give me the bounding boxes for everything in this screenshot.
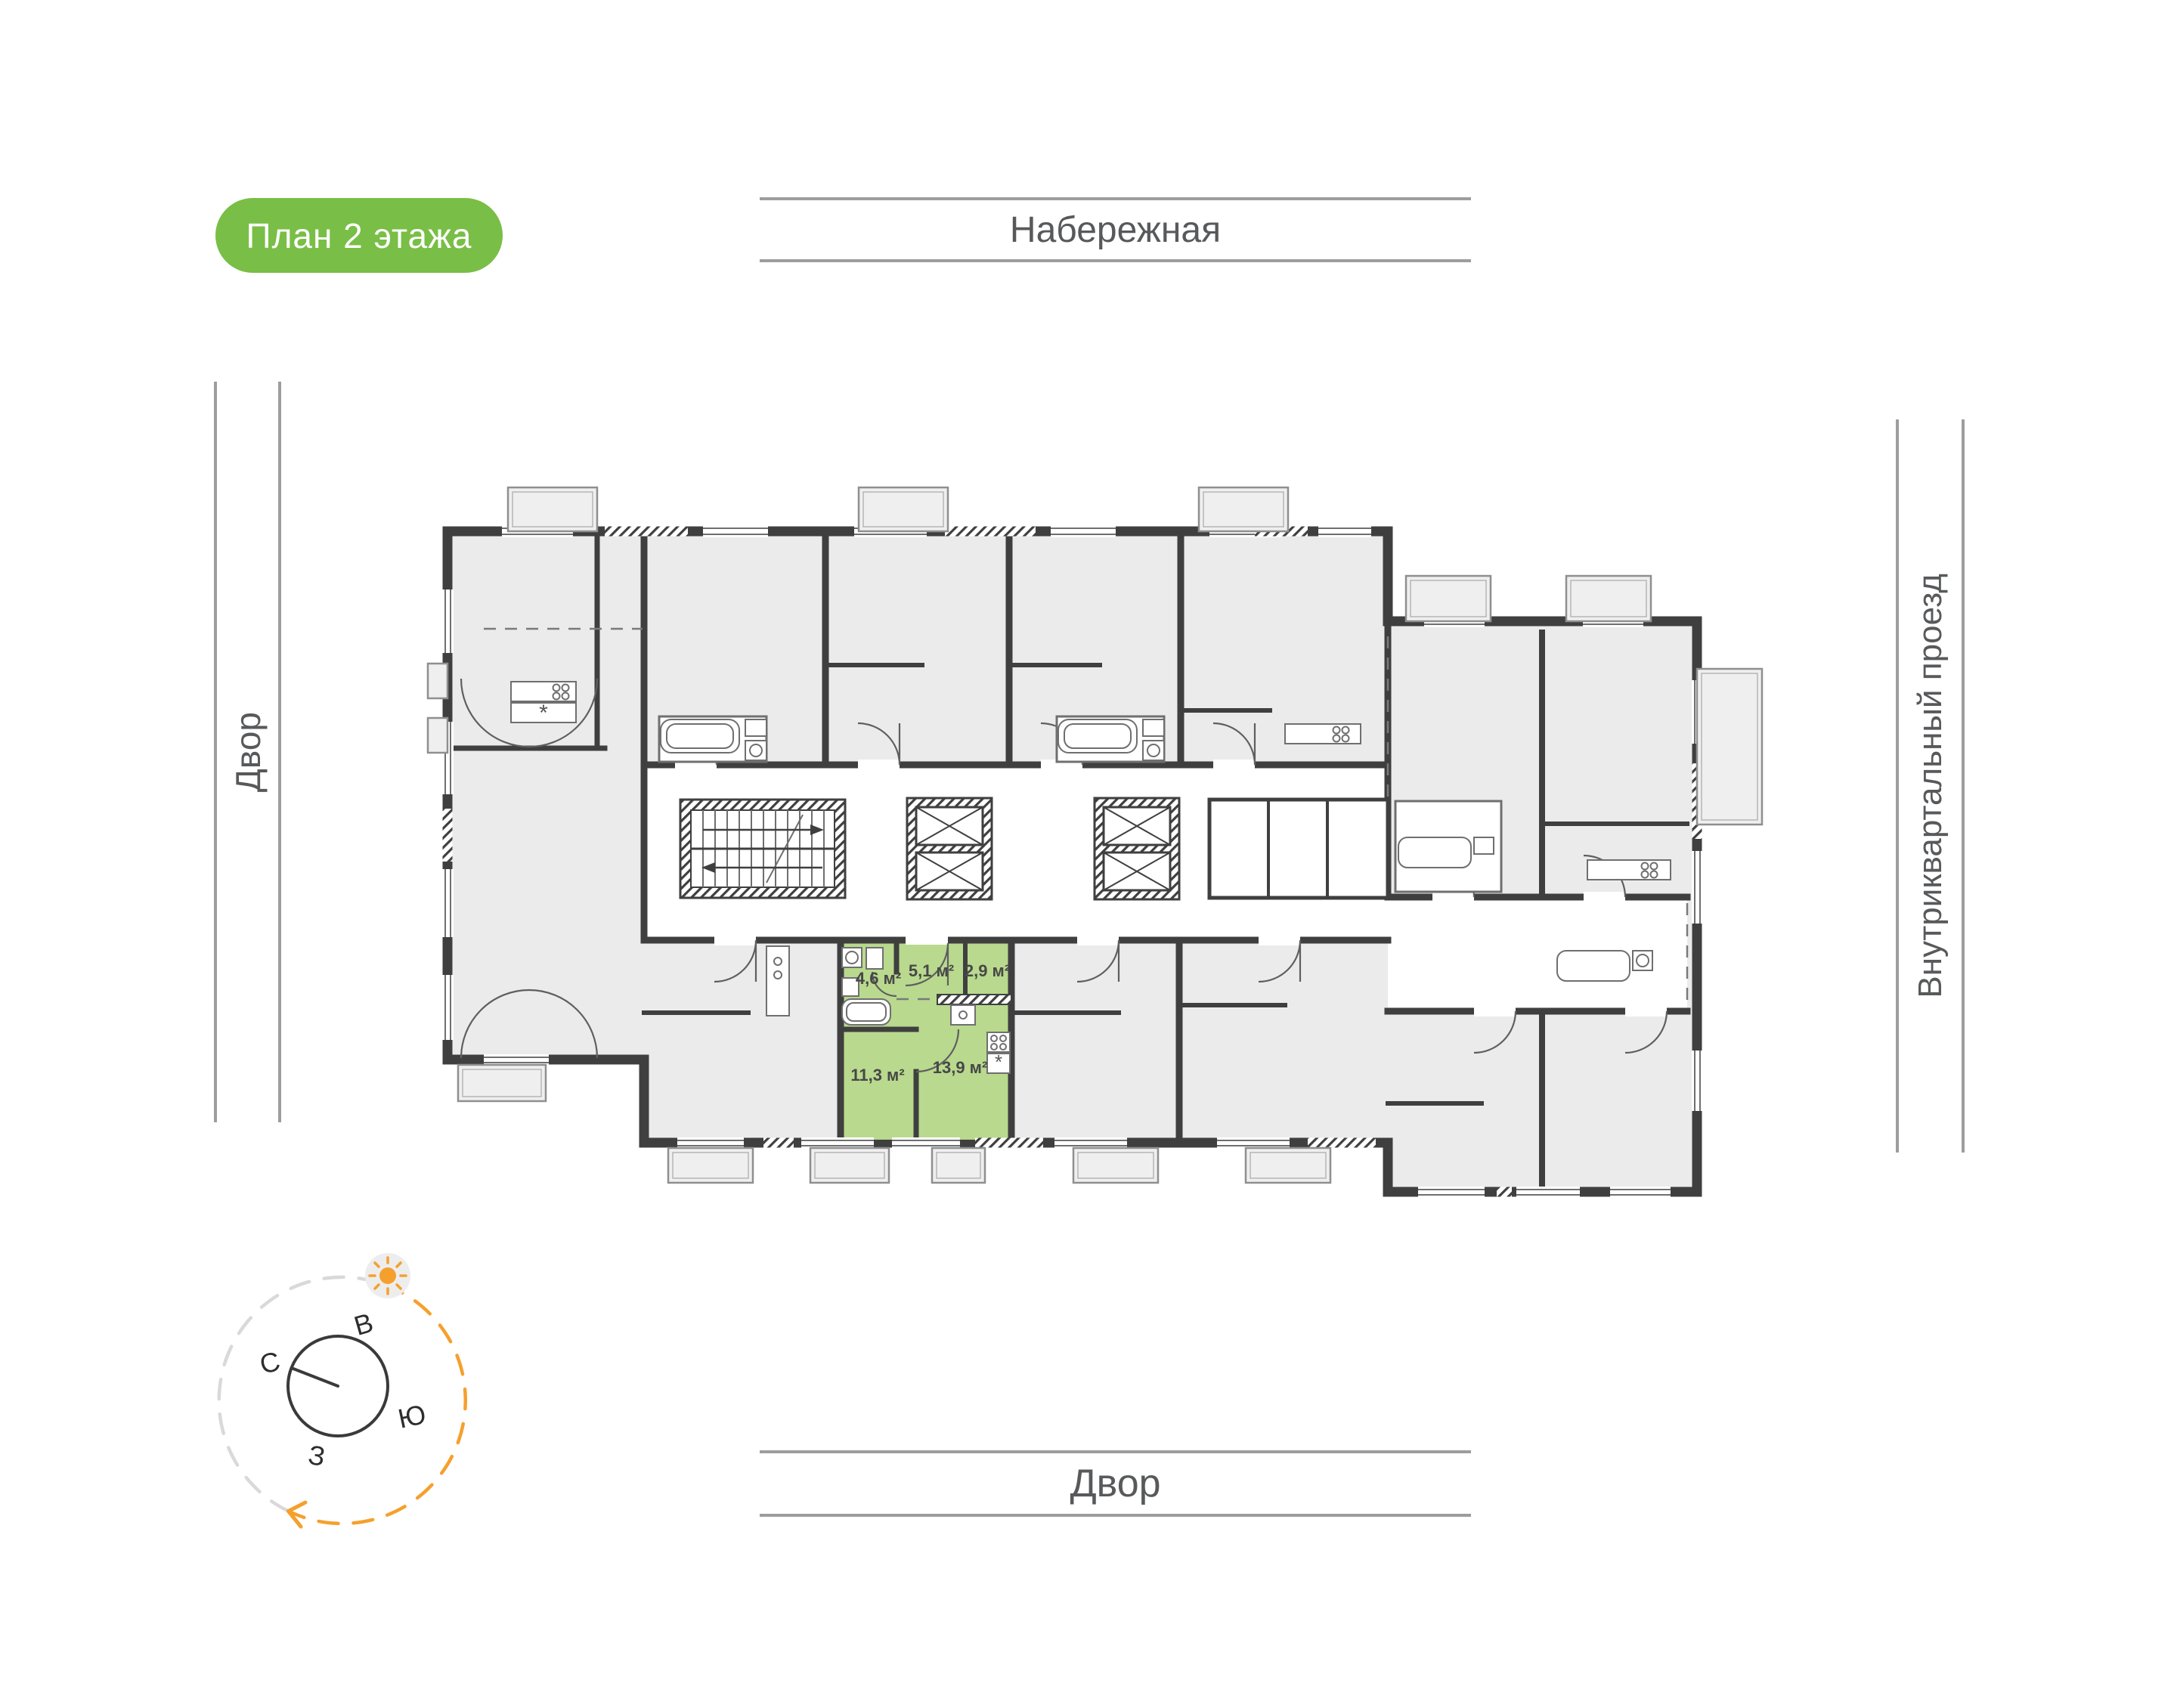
compass-label-south: Ю	[395, 1398, 429, 1434]
area-label-storage: 2,9 м²	[965, 961, 1010, 980]
area-label-living-room: 11,3 м²	[850, 1066, 904, 1085]
sun-icon	[365, 1253, 410, 1298]
fridge-mark: *	[995, 1050, 1002, 1073]
elevator-shafts	[907, 798, 1388, 899]
area-label-kitchen: 13,9 м²	[933, 1058, 988, 1077]
compass: В С Ю З	[219, 1253, 466, 1527]
compass-label-west: З	[306, 1439, 328, 1472]
hatched-wall	[937, 995, 1011, 1004]
compass-label-north: С	[256, 1345, 283, 1380]
stairwell	[680, 800, 845, 898]
compass-label-east: В	[351, 1307, 376, 1341]
fridge-mark: *	[539, 701, 548, 726]
building	[447, 531, 1697, 1192]
area-label-hallway: 5,1 м²	[909, 961, 954, 980]
area-label-bathroom: 4,6 м²	[856, 969, 901, 988]
floor-plan-svg: * *	[0, 0, 2177, 1708]
